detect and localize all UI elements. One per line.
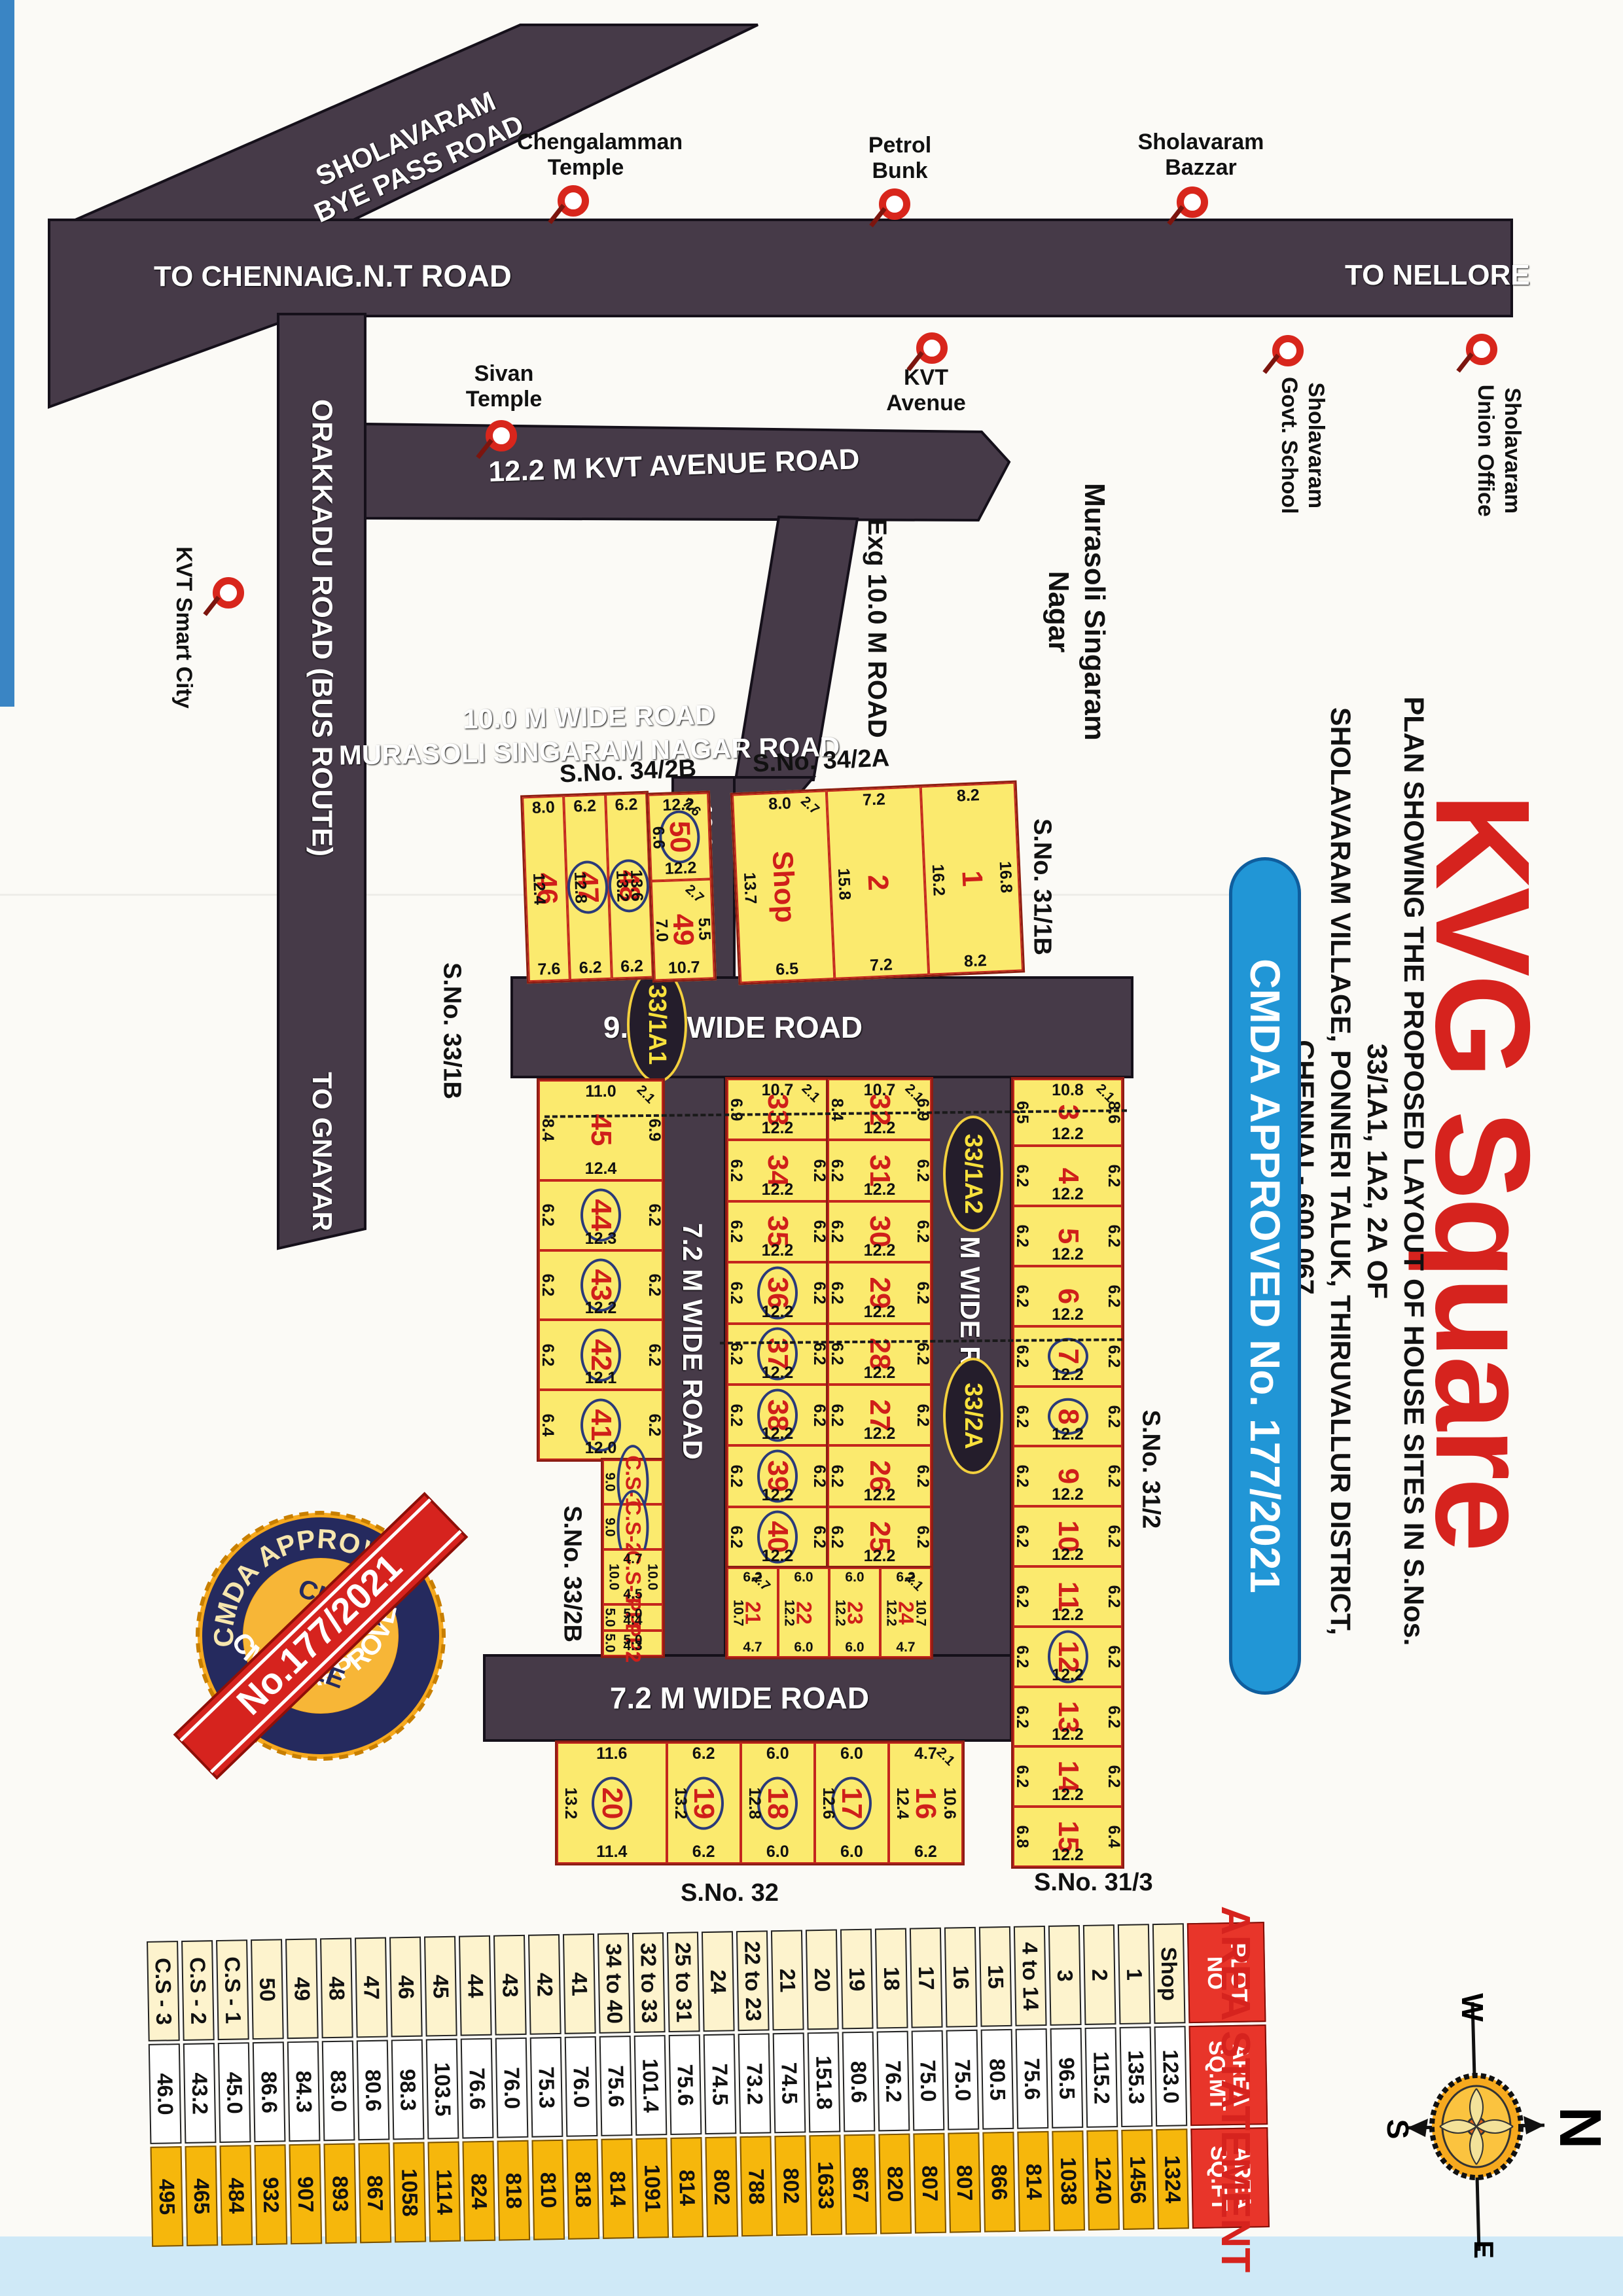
area-cell-value: 818: [501, 2172, 526, 2209]
plot-30: 306.212.26.2: [828, 1201, 931, 1262]
plot-dimension: 6.2: [1012, 1405, 1031, 1428]
plot-dimension: 6.2: [913, 1465, 932, 1488]
plot-dimension: 6.2: [579, 958, 602, 978]
plot-dimension: 9.0: [602, 1473, 618, 1492]
plot-dimension: 4.3: [623, 1638, 642, 1654]
area-cell-value: 34 to 40: [601, 1943, 627, 2024]
area-row-42: 4275.3810: [528, 1934, 565, 2240]
plot-48: 486.213.66.213.2: [605, 793, 653, 979]
area-sqft: 1456: [1121, 2129, 1154, 2230]
plot-dimension: 12.2: [762, 1486, 794, 1505]
plot-dimension: 12.2: [832, 1599, 847, 1626]
area-cell-value: 1633: [813, 2161, 838, 2209]
plot-dimension: 6.9: [645, 1119, 664, 1142]
area-cell-value: 810: [535, 2172, 561, 2208]
area-sqmt: 74.5: [704, 2034, 737, 2134]
area-row-47: 4780.6867: [355, 1937, 391, 2244]
area-cell-value: 20: [810, 1968, 835, 1992]
plot-PP2: PP25.04.35.0: [603, 1631, 663, 1656]
area-sqmt: 75.3: [530, 2037, 563, 2138]
plot-dimension: 12.4: [585, 1159, 617, 1178]
area-cell-value: 866: [986, 2164, 1012, 2200]
area-sqft: 907: [289, 2144, 323, 2244]
area-sqmt: 73.2: [738, 2033, 772, 2134]
area-cell-value: 75.0: [915, 2059, 940, 2102]
area-sqft: 818: [566, 2139, 599, 2240]
plot-dimension: 4.7: [896, 1640, 915, 1655]
exg-road-label: Exg 10.0 M ROAD: [861, 491, 893, 766]
plot-dimension: 10.0: [645, 1564, 660, 1591]
plot-dimension: 6.0: [794, 1570, 813, 1585]
plot-29: 296.212.26.2: [828, 1262, 931, 1323]
block-shop-2-1: Shop8.06.513.72.727.27.215.818.216.88.21…: [730, 781, 1025, 985]
sholavaram-bazzar-label: SholavaramBazzar: [1135, 130, 1266, 181]
plot-46: 468.07.612.4: [522, 796, 570, 981]
area-cell-value: 75.6: [672, 2064, 698, 2106]
plot-dimension: 12.8: [570, 872, 590, 904]
plot-32: 3210.76.912.28.42.1: [828, 1079, 931, 1140]
area-cell-value: 32 to 33: [635, 1942, 662, 2023]
sno-31-3: S.No. 31/3: [1034, 1869, 1153, 1897]
area-row-1: 1135.31456: [1118, 1924, 1154, 2230]
petrol-bunk-pin-icon: [879, 188, 910, 220]
plot-7: 76.212.26.2: [1013, 1326, 1122, 1386]
area-cell-value: 18: [879, 1966, 904, 1990]
compass-w: W: [1455, 1993, 1489, 2022]
area-row-19: 1980.6867: [840, 1929, 877, 2235]
badge-33-2a: 33/2A: [943, 1358, 1003, 1474]
plot-dimension: 6.2: [827, 1281, 846, 1304]
area-plot-no: 49: [285, 1938, 319, 2039]
area-cell-value: 76.6: [464, 2067, 490, 2110]
area-plot-no: 50: [251, 1939, 284, 2040]
area-row-C.S - 1: C.S - 145.0484: [216, 1939, 253, 2246]
plot-dimension: 6.8: [1012, 1826, 1031, 1848]
plot-dimension: 12.2: [762, 1180, 794, 1199]
area-cell-value: 907: [293, 2176, 318, 2212]
area-plot-no: 44: [459, 1935, 492, 2036]
plot-14: 146.212.26.2: [1013, 1746, 1122, 1807]
area-cell-value: 75.0: [950, 2058, 975, 2101]
plot-dimension: 6.2: [913, 1220, 932, 1243]
plot-dimension: 12.2: [1052, 1125, 1084, 1144]
plot-dimension: 2.7: [682, 882, 707, 906]
plot-dimension: 12.2: [1052, 1366, 1084, 1385]
area-cell-value: 75.3: [533, 2066, 559, 2108]
area-cell-value: 50: [255, 1977, 280, 2002]
plot-8: 86.212.26.2: [1013, 1386, 1122, 1447]
plot-40: 406.212.26.2: [727, 1507, 828, 1568]
plot-dimension: 12.2: [864, 1364, 896, 1383]
area-sqft: 802: [774, 2135, 808, 2236]
to-gnayar-label: TO GNAYAR: [302, 1067, 342, 1237]
plot-dimension: 6.2: [913, 1404, 932, 1426]
area-cell-value: 25 to 31: [670, 1941, 696, 2022]
plot-dimension: 6.2: [1104, 1705, 1123, 1728]
area-sqmt: 75.0: [946, 2030, 980, 2130]
plot-dimension: 13.7: [740, 872, 760, 905]
area-sqmt: 75.6: [669, 2034, 702, 2135]
plot-dimension: 6.2: [1012, 1645, 1031, 1668]
plot-dimension: 6.2: [1104, 1525, 1123, 1548]
area-cell-value: 43.2: [187, 2072, 213, 2115]
area-cell-value: 1240: [1090, 2156, 1116, 2204]
area-cell-value: 49: [289, 1977, 315, 2001]
plot-dimension: 6.2: [692, 1843, 715, 1862]
plot-11: 116.212.26.2: [1013, 1566, 1122, 1627]
plot-dimension: 6.0: [845, 1570, 864, 1585]
area-row-21: 2174.5802: [771, 1930, 808, 2236]
plot-dimension: 8.0: [532, 798, 556, 818]
plot-dimension: 6.2: [1012, 1585, 1031, 1608]
plot-dimension: 12.2: [1052, 1245, 1084, 1264]
area-sqmt: 115.2: [1085, 2027, 1118, 2128]
kvt-avenue-pin-icon: [916, 332, 948, 364]
area-cell-value: 3: [1052, 1969, 1077, 1981]
block-21-24: 216.24.710.72.7226.06.012.2236.06.012.22…: [725, 1566, 933, 1659]
plot-50: 5012.212.26.67.6: [648, 792, 711, 881]
area-cell-value: 807: [917, 2165, 942, 2202]
area-row-C.S - 2: C.S - 243.2465: [181, 1940, 218, 2246]
area-row-2: 2115.21240: [1083, 1924, 1120, 2231]
plot-47: 476.26.212.8: [563, 794, 611, 980]
plot-dimension: 6.2: [827, 1526, 846, 1549]
plot-dimension: 6.2: [914, 1843, 937, 1862]
area-cell-value: 48: [324, 1976, 349, 2000]
plot-dimension: 6.2: [645, 1343, 664, 1366]
plot-dimension: 6.2: [1012, 1765, 1031, 1788]
sivan-temple-pin-icon: [486, 420, 517, 451]
area-row-16: 1675.0807: [944, 1927, 981, 2233]
plot-dimension: 6.2: [1012, 1525, 1031, 1548]
plot-dimension: 6.0: [766, 1843, 789, 1862]
plot-dimension: 13.2: [612, 870, 632, 902]
plot-dimension: 6.2: [726, 1220, 745, 1243]
plot-dimension: 15.8: [834, 868, 854, 900]
area-row-22 to 23: 22 to 2373.2788: [736, 1930, 773, 2236]
plot-dimension: 12.2: [1052, 1786, 1084, 1805]
area-cell-value: 74.5: [776, 2062, 802, 2104]
area-sqmt: 75.6: [599, 2036, 633, 2136]
sno-31-2: S.No. 31/2: [1136, 1401, 1166, 1538]
plot-dimension: 10.6: [940, 1787, 959, 1819]
area-sqft: 484: [220, 2145, 253, 2246]
gnt-road-label: G.N.T ROAD: [330, 258, 512, 294]
plot-dimension: 8.2: [963, 951, 987, 971]
area-sqft: 788: [740, 2136, 773, 2236]
area-cell-value: 42: [532, 1972, 558, 1996]
cmda-seal: CMDA APPROVED CMDA APPROVED CLEAR TITLE …: [170, 1485, 471, 1786]
area-cell-value: 76.0: [568, 2065, 594, 2108]
plot-dimension: 6.2: [1012, 1345, 1031, 1368]
plot-dimension: 12.2: [1052, 1185, 1084, 1204]
plot-20: 2011.611.413.2: [557, 1742, 667, 1863]
plot-dimension: 6.2: [1104, 1225, 1123, 1248]
area-cell-value: 2: [1087, 1969, 1112, 1981]
area-row-C.S - 3: C.S - 346.0495: [147, 1941, 183, 2247]
plot-dimension: 6.2: [645, 1204, 664, 1227]
plot-dimension: 12.8: [745, 1787, 764, 1819]
area-cell-value: 80.6: [846, 2060, 871, 2103]
block-16-20: 2011.611.413.2196.26.213.2186.06.012.817…: [555, 1740, 965, 1865]
plot-dimension: 12.2: [864, 1119, 896, 1138]
area-plot-no: 24: [702, 1931, 735, 2032]
plot-dimension: 6.2: [827, 1159, 846, 1182]
area-sqft: 1633: [809, 2134, 842, 2235]
area-cell-value: 15: [983, 1964, 1008, 1988]
plot-10: 106.212.26.2: [1013, 1506, 1122, 1566]
area-sqmt: 135.3: [1120, 2026, 1153, 2127]
union-office-label: SholavaramUnion Office: [1472, 362, 1525, 539]
area-cell-value: 74.5: [707, 2063, 732, 2106]
area-plot-no: 3: [1048, 1925, 1082, 2026]
area-sqft: 1038: [1052, 2130, 1085, 2231]
plot-44: 446.212.36.2: [539, 1180, 663, 1250]
area-cell-value: 45: [428, 1974, 454, 1998]
area-sqmt: 101.4: [634, 2035, 668, 2136]
plot-dimension: 12.2: [864, 1180, 896, 1199]
area-sqft: 1091: [635, 2138, 669, 2238]
plot-22: 226.06.012.2: [778, 1568, 829, 1657]
plot-number: 4: [1052, 1168, 1084, 1184]
plot-dimension: 16.2: [928, 864, 948, 896]
area-sqmt: 86.6: [253, 2041, 286, 2142]
plot-dimension: 6.2: [726, 1404, 745, 1426]
area-cell-value: 47: [359, 1975, 384, 2000]
area-cell-value: 4 to 14: [1017, 1941, 1043, 2010]
orakkadu-road-label: ORAKKADU ROAD (BUS ROUTE): [291, 419, 353, 838]
plot-dimension: 12.2: [762, 1424, 794, 1443]
plot-18: 186.06.012.8: [741, 1742, 815, 1863]
plot-dimension: 12.2: [762, 1303, 794, 1322]
area-plot-no: 1: [1118, 1924, 1151, 2024]
area-cell-value: 17: [914, 1966, 939, 1990]
area-sqmt: 83.0: [322, 2040, 355, 2141]
area-row-44: 4476.6824: [459, 1935, 495, 2242]
area-sqft: 810: [531, 2140, 565, 2240]
area-cell-value: 86.6: [257, 2071, 282, 2113]
road-72-h-label: 7.2 M WIDE ROAD: [543, 1678, 936, 1718]
plot-dimension: 12.4: [893, 1787, 912, 1819]
area-cell-value: Shop: [1156, 1947, 1181, 2001]
plot-number: 20: [592, 1776, 632, 1829]
plot-dimension: 8.2: [956, 786, 980, 805]
plot-number: 6: [1052, 1288, 1084, 1304]
area-cell-value: 103.5: [429, 2062, 455, 2116]
to-nellore-label: TO NELLORE: [1345, 259, 1530, 292]
area-sqft: 1058: [393, 2142, 426, 2243]
area-sqmt: 80.6: [357, 2040, 390, 2141]
area-sqmt: 76.0: [565, 2036, 598, 2137]
plot-dimension: 6.4: [538, 1413, 557, 1436]
area-cell-value: 1058: [397, 2168, 422, 2216]
plot-dimension: 10.7: [668, 958, 701, 978]
area-cell-value: 83.0: [326, 2070, 351, 2112]
plot-dimension: 6.2: [827, 1343, 846, 1366]
area-cell-value: 75.6: [1019, 2057, 1044, 2100]
area-plot-no: 15: [979, 1926, 1012, 2027]
plot-dimension: 6.2: [538, 1274, 557, 1297]
area-cell-value: 45.0: [222, 2072, 247, 2114]
block-25-32: 3210.76.912.28.42.1316.212.26.2306.212.2…: [826, 1077, 933, 1570]
area-cell-value: 1038: [1056, 2157, 1081, 2205]
area-plot-no: 34 to 40: [597, 1933, 631, 2034]
area-plot-no: 45: [424, 1936, 457, 2037]
road-9m-h-label: 9.0 M WIDE ROAD: [524, 1008, 942, 1047]
plot-4: 46.212.26.2: [1013, 1146, 1122, 1206]
area-cell-value: 123.0: [1158, 2049, 1183, 2104]
area-plot-no: 4 to 14: [1014, 1926, 1047, 2026]
area-plot-no: C.S - 2: [181, 1940, 215, 2041]
area-cell-value: 75.6: [603, 2065, 628, 2108]
area-sqft: 495: [151, 2146, 184, 2247]
plot-31: 316.212.26.2: [828, 1140, 931, 1201]
sno-32: S.No. 32: [681, 1879, 779, 1907]
area-sqmt: 74.5: [773, 2032, 806, 2133]
compass-s: S: [1381, 2119, 1415, 2140]
area-cell-value: 76.2: [880, 2060, 906, 2102]
plot-C.S-3: C.S-34.710.04.510.0: [603, 1549, 663, 1604]
area-plot-no: 20: [806, 1930, 839, 2030]
chengalamman-temple-label: ChengalammanTemple: [517, 130, 654, 181]
plot-dimension: 6.2: [913, 1526, 932, 1549]
area-cell-value: 484: [223, 2177, 249, 2214]
plot-number: 16: [909, 1787, 942, 1819]
area-sqft: 807: [913, 2133, 946, 2234]
plot-42: 426.212.16.2: [539, 1320, 663, 1390]
sno-34-2b: S.No. 34/2B: [559, 754, 697, 788]
plot-number: Shop: [766, 850, 802, 923]
sivan-temple-label: SivanTemple: [452, 361, 556, 412]
plot-dimension: 12.2: [762, 1119, 794, 1138]
area-cell-value: 818: [570, 2171, 596, 2208]
block-33-40: 3310.712.26.92.1346.212.26.2356.212.26.2…: [725, 1077, 830, 1570]
plot-dimension: 6.2: [726, 1159, 745, 1182]
plot-dimension: 6.2: [1012, 1465, 1031, 1488]
plot-dimension: 6.2: [1104, 1345, 1123, 1368]
area-plot-no: 17: [910, 1928, 943, 2028]
area-plot-no: 18: [875, 1928, 908, 2029]
area-row-17: 1775.0807: [910, 1928, 946, 2234]
plot-dimension: 8.4: [827, 1098, 846, 1121]
plot-dimension: 6.0: [794, 1640, 813, 1655]
plot-dimension: 10.7: [913, 1599, 929, 1626]
union-office-pin-icon: [1466, 334, 1497, 365]
area-statement-table: C.S - 346.0495C.S - 243.2465C.S - 145.04…: [147, 1922, 1270, 2247]
plot-dimension: 12.2: [664, 859, 697, 879]
plot-dimension: 12.2: [585, 1299, 617, 1318]
plot-dimension: 9.0: [602, 1517, 618, 1536]
plot-dimension: 6.0: [840, 1843, 863, 1862]
plot-dimension: 6.2: [1104, 1405, 1123, 1428]
road-72-v-label: 7.2 M WIDE ROAD: [676, 1158, 709, 1525]
plot-dimension: 10.7: [864, 1081, 896, 1100]
plot-dimension: 6.6: [649, 826, 668, 849]
plot-dimension: 12.2: [1052, 1666, 1084, 1685]
sno-34-2a: S.No. 34/2A: [752, 744, 890, 778]
area-sqmt: 98.3: [391, 2040, 425, 2140]
plot-dimension: 6.2: [1104, 1585, 1123, 1608]
plot-dimension: 12.2: [781, 1599, 796, 1626]
plot-number: 5: [1052, 1228, 1084, 1244]
area-cell-value: 21: [775, 1968, 800, 1992]
plot-dimension: 6.2: [1104, 1765, 1123, 1788]
sno-31-1b: S.No. 31/1B: [1027, 812, 1057, 963]
area-row-20: 20151.81633: [806, 1930, 842, 2236]
plot-dimension: 6.9: [726, 1098, 745, 1121]
plot-dimension: 12.6: [819, 1787, 838, 1819]
compass-n: N: [1547, 2107, 1610, 2149]
plot-2: 27.27.215.8: [827, 786, 929, 979]
area-row-50: 5086.6932: [251, 1939, 287, 2245]
plot-dimension: 6.2: [645, 1413, 664, 1436]
area-row-Shop: Shop123.01324: [1152, 1923, 1189, 2229]
plot-dimension: 6.2: [827, 1404, 846, 1426]
plot-dimension: 6.2: [1012, 1705, 1031, 1728]
plot-dimension: 6.2: [913, 1159, 932, 1182]
plot-dimension: 6.2: [620, 957, 644, 976]
area-plot-no: 16: [944, 1927, 978, 2028]
area-row-3: 396.51038: [1048, 1925, 1085, 2231]
badge-33-1a1: 33/1A1: [627, 966, 687, 1083]
plot-dimension: 6.2: [913, 1281, 932, 1304]
plot-dimension: 12.2: [883, 1599, 899, 1626]
plot-41: 416.212.06.4: [539, 1390, 663, 1460]
plot-dimension: 6.2: [1104, 1645, 1123, 1668]
block-3-15: 310.88.612.26.52.146.212.26.256.212.26.2…: [1011, 1077, 1124, 1869]
kvt-avenue-label: KVTAvenue: [870, 365, 982, 416]
area-sqmt: 151.8: [808, 2032, 841, 2133]
area-cell-value: 151.8: [811, 2055, 836, 2110]
block-cs-pp: C.S-19.0C.S-29.0C.S-34.710.04.510.0PP15.…: [601, 1458, 665, 1658]
plot-dimension: 11.4: [596, 1843, 627, 1862]
plot-dimension: 12.3: [585, 1229, 617, 1248]
area-plot-no: 48: [320, 1937, 353, 2038]
area-row-48: 4883.0893: [320, 1937, 357, 2244]
area-cell-value: 1114: [431, 2168, 457, 2214]
area-cell-value: 814: [1021, 2163, 1046, 2200]
plot-dimension: 12.2: [1052, 1606, 1084, 1625]
plot-dimension: 6.2: [1012, 1165, 1031, 1188]
plot-dimension: 6.2: [1104, 1165, 1123, 1188]
area-cell-value: C.S - 2: [185, 1956, 211, 2024]
plot-dimension: 12.4: [529, 873, 549, 906]
area-plot-no: Shop: [1152, 1923, 1186, 2024]
plot-dimension: 6.0: [766, 1744, 789, 1763]
area-cell-value: 807: [952, 2164, 977, 2201]
plot-24: 246.210.74.712.22.1: [880, 1568, 931, 1657]
plot-dimension: 8.4: [538, 1119, 557, 1142]
area-plot-no: C.S - 3: [147, 1941, 180, 2041]
area-sqft: 893: [323, 2143, 357, 2244]
plot-dimension: 11.6: [596, 1744, 627, 1763]
compass-rose: W E S N: [1348, 1989, 1610, 2264]
area-cell-value: 80.6: [361, 2069, 386, 2111]
plot-number: 1: [955, 870, 988, 887]
plot-23: 236.06.012.2: [829, 1568, 880, 1657]
sno-33-1b: S.No. 33/1B: [437, 956, 467, 1106]
area-row-25 to 31: 25 to 3175.6814: [667, 1932, 704, 2238]
plot-dimension: 5.0: [602, 1608, 618, 1627]
plot-C.S-2: C.S-29.0: [603, 1504, 663, 1549]
area-plot-no: 25 to 31: [667, 1932, 700, 2032]
plot-36: 366.212.26.2: [727, 1262, 828, 1323]
plot-49: 495.510.77.02.7: [651, 879, 715, 981]
area-cell-value: C.S - 1: [219, 1956, 245, 2023]
area-sqmt: 46.0: [149, 2043, 182, 2144]
plot-dimension: 6.2: [726, 1465, 745, 1488]
area-sqmt: 80.5: [981, 2029, 1014, 2130]
